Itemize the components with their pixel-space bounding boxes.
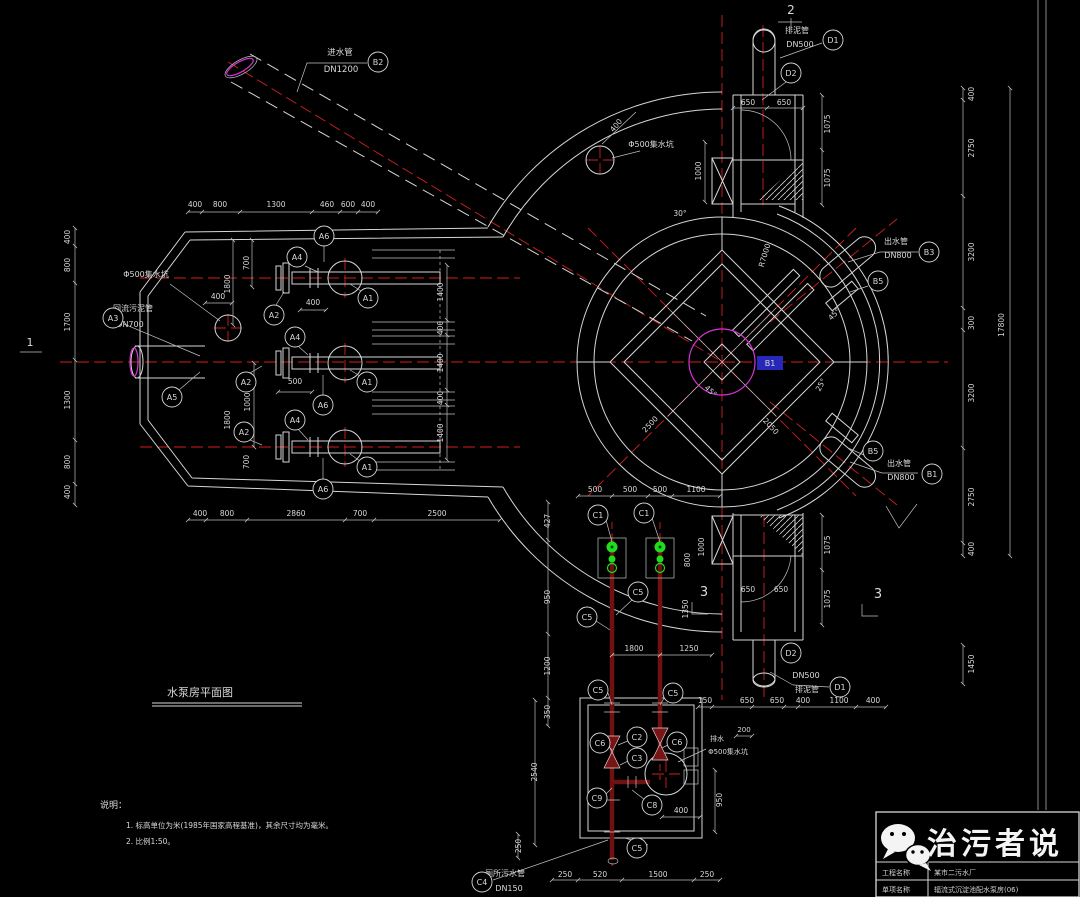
dim-text: 1075 <box>823 114 832 133</box>
influent-pipe-dn1200 <box>222 52 706 341</box>
drawing-title: 水泵房平面图 <box>167 686 233 699</box>
balloon-label: C6 <box>672 738 683 747</box>
pipe-label: 排泥管 <box>785 25 809 35</box>
dim-text: 300 <box>967 316 976 331</box>
pipe-label: 出水管 <box>884 236 908 246</box>
dim-text: 500 <box>588 485 603 494</box>
pipe-label: DN500 <box>786 40 813 49</box>
balloon-label: C5 <box>668 689 679 698</box>
sump-label: Φ500集水坑 <box>708 747 748 756</box>
dim-text: 1000 <box>697 537 706 556</box>
dim-text: 400 <box>63 230 72 245</box>
dim-text: 1300 <box>266 200 285 209</box>
dim-text: 45° <box>703 383 719 399</box>
balloon-label: A4 <box>290 333 301 342</box>
dim-text: 3200 <box>967 242 976 261</box>
dim-text: 800 <box>63 258 72 273</box>
dim-text: 1350 <box>681 599 690 618</box>
dim-text: 45° <box>826 306 842 322</box>
dim-text: 950 <box>715 793 724 808</box>
dim-text: 427 <box>543 514 552 529</box>
drawing-title-block: 水泵房平面图 <box>152 686 302 706</box>
dim-text: 2050 <box>761 416 781 436</box>
dim-text: 400 <box>866 696 881 705</box>
dim-text: 1100 <box>686 485 705 494</box>
dim-text: 400 <box>967 87 976 102</box>
cad-drawing-screenshot: 进水管DN1200排泥管DN500Φ500集水坑400Φ500集水坑400回流污… <box>0 0 1080 897</box>
dim-text: 520 <box>593 870 608 879</box>
balloon-label: B1 <box>927 470 938 479</box>
dim-text: 1250 <box>679 644 698 653</box>
dim-text: 700 <box>242 455 251 470</box>
pipe-label: 厕所污水管 <box>485 868 525 878</box>
balloon-label: D1 <box>827 36 838 45</box>
balloon-label: A4 <box>292 253 303 262</box>
dim-text: 1400 <box>436 353 445 372</box>
dim-text: 2500 <box>427 509 446 518</box>
section-marker: 1 <box>27 336 34 349</box>
dim-text: 460 <box>320 200 335 209</box>
dim-text: 1450 <box>967 654 976 673</box>
balloon-label: A6 <box>318 485 329 494</box>
balloon-label: B5 <box>873 277 884 286</box>
balloon-label: C4 <box>477 878 488 887</box>
pipe-label: DN800 <box>884 251 911 260</box>
dim-text: 250 <box>558 870 573 879</box>
dim-text: 400 <box>193 509 208 518</box>
pipe-label: DN500 <box>792 671 819 680</box>
balloon-label: B3 <box>924 248 935 257</box>
dim-text: R7000 <box>757 242 773 268</box>
annotation-layer: 进水管DN1200排泥管DN500Φ500集水坑400Φ500集水坑400回流污… <box>27 3 1007 893</box>
dim-text: 400 <box>608 117 624 134</box>
dim-text: 400 <box>436 321 445 336</box>
dim-text: 30° <box>673 209 687 218</box>
section-marker: 2 <box>787 3 795 17</box>
pipe-label: DN150 <box>495 884 522 893</box>
balloon-label: B5 <box>868 447 879 456</box>
dim-text: 2860 <box>286 509 305 518</box>
dim-text: 1400 <box>436 423 445 442</box>
dim-text: 650 <box>740 696 755 705</box>
dim-text: 350 <box>543 705 552 720</box>
dim-text: 2750 <box>967 138 976 157</box>
dim-text: 2500 <box>640 414 660 434</box>
balloon-label: A2 <box>241 378 252 387</box>
titleblock-label: 工程名称 <box>882 868 910 877</box>
dim-text: 500 <box>288 377 303 386</box>
dim-text: 250 <box>700 870 715 879</box>
balloon-label: A1 <box>362 378 373 387</box>
notes: 说明： 1. 标高单位为米(1985年国家高程基准)，其余尺寸均为毫米。 2. … <box>100 799 333 846</box>
pipe-label: 排泥管 <box>795 684 819 694</box>
dim-text: 200 <box>737 726 750 734</box>
top-gate-chamber <box>712 29 803 218</box>
pipe-label: 进水管 <box>327 47 353 58</box>
dim-text: 400 <box>967 542 976 557</box>
dim-text: 17800 <box>997 313 1006 337</box>
balloon-label: A6 <box>318 401 329 410</box>
dim-text: 400 <box>361 200 376 209</box>
balloon-label: C5 <box>593 686 604 695</box>
dim-text: 500 <box>623 485 638 494</box>
balloon-label: C9 <box>592 794 603 803</box>
dim-text: 650 <box>741 98 756 107</box>
selected-label-b1: B1 <box>765 359 776 368</box>
dim-text: 25° <box>814 377 828 393</box>
pipe-label: 出水管 <box>887 458 911 468</box>
dim-text: 1300 <box>63 390 72 409</box>
drawing-canvas: 进水管DN1200排泥管DN500Φ500集水坑400Φ500集水坑400回流污… <box>0 0 1080 897</box>
balloon-label: D2 <box>785 69 796 78</box>
dim-text: 150 <box>698 696 713 705</box>
dim-text: 650 <box>774 585 789 594</box>
pump-house <box>131 146 614 497</box>
balloon-label: A4 <box>290 416 301 425</box>
dim-text: 700 <box>242 256 251 271</box>
sump-label: 排水 <box>710 734 724 743</box>
dim-text: 800 <box>213 200 228 209</box>
balloon-label: D2 <box>785 649 796 658</box>
dim-text: 800 <box>63 455 72 470</box>
sump-label: Φ500集水坑 <box>628 139 674 149</box>
balloon-label: A5 <box>167 393 178 402</box>
pump-units <box>276 261 440 464</box>
dim-text: 1500 <box>648 870 667 879</box>
balloon-label: C5 <box>633 588 644 597</box>
dim-text: 1800 <box>223 274 232 293</box>
dim-text: 250 <box>514 839 523 854</box>
titleblock-label: 单项名称 <box>882 885 910 894</box>
pipe-label: DN800 <box>887 473 914 482</box>
dim-text: 1000 <box>694 161 703 180</box>
dim-text: 400 <box>436 391 445 406</box>
dim-text: 1075 <box>823 168 832 187</box>
balloon-label: A2 <box>239 428 250 437</box>
balloon-label: C3 <box>632 754 643 763</box>
dim-text: 3200 <box>967 383 976 402</box>
balloon-label: C5 <box>632 844 643 853</box>
balloon-label: C1 <box>593 511 604 520</box>
dim-text: 650 <box>741 585 756 594</box>
balloon-label: C5 <box>582 613 593 622</box>
dim-text: 400 <box>796 696 811 705</box>
section-marker: 3 <box>874 587 882 602</box>
watermark-titleblock: 治污者说 工程名称 某市二污水厂 单项名称 辐流式沉淀池配水泵房(06) <box>876 812 1079 897</box>
watermark-text: 治污者说 <box>927 827 1063 862</box>
titleblock-value: 辐流式沉淀池配水泵房(06) <box>934 885 1019 894</box>
balloon-label: C1 <box>639 509 650 518</box>
balloon-label: C2 <box>632 733 643 742</box>
notes-heading: 说明： <box>100 799 127 811</box>
dim-text: 2750 <box>967 487 976 506</box>
section-marker: 3 <box>700 585 708 600</box>
centerlines <box>60 15 948 866</box>
dim-text: 1700 <box>63 312 72 331</box>
dim-text: 2540 <box>530 762 539 781</box>
dim-text: 1400 <box>436 282 445 301</box>
dim-text: 1000 <box>243 392 252 411</box>
dim-text: 800 <box>220 509 235 518</box>
dim-text: 1200 <box>543 656 552 675</box>
sump-label: Φ500集水坑 <box>123 269 169 279</box>
balloon-label: A1 <box>363 294 374 303</box>
dim-text: 1800 <box>223 410 232 429</box>
dim-text: 1075 <box>823 589 832 608</box>
dim-text: 650 <box>770 696 785 705</box>
dim-text: 600 <box>341 200 356 209</box>
balloon-label: D1 <box>834 683 845 692</box>
dim-text: 400 <box>674 806 689 815</box>
dim-text: 1800 <box>624 644 643 653</box>
valve-actuator-icon <box>607 542 666 573</box>
dim-text: 400 <box>306 298 321 307</box>
dim-text: 700 <box>353 509 368 518</box>
balloon-label: C8 <box>647 801 658 810</box>
balloon-label: A3 <box>108 314 119 323</box>
dim-text: 800 <box>683 553 692 568</box>
balloon-label: B2 <box>373 58 384 67</box>
dim-text: 950 <box>543 590 552 605</box>
note-item: 1. 标高单位为米(1985年国家高程基准)，其余尺寸均为毫米。 <box>126 820 333 830</box>
pipe-label: DN1200 <box>324 65 359 75</box>
leader-lines <box>20 0 1046 880</box>
dim-text: 650 <box>777 98 792 107</box>
titleblock-value: 某市二污水厂 <box>934 868 976 877</box>
note-item: 2. 比例1:50。 <box>126 836 175 846</box>
balloon-label: A1 <box>362 463 373 472</box>
dim-text: 1075 <box>823 535 832 554</box>
balloon-label: A6 <box>319 232 330 241</box>
dim-text: 500 <box>653 485 668 494</box>
balloon-label: A2 <box>269 311 280 320</box>
dim-text: 400 <box>188 200 203 209</box>
balloon-label: C6 <box>595 739 606 748</box>
dim-text: 400 <box>63 485 72 500</box>
